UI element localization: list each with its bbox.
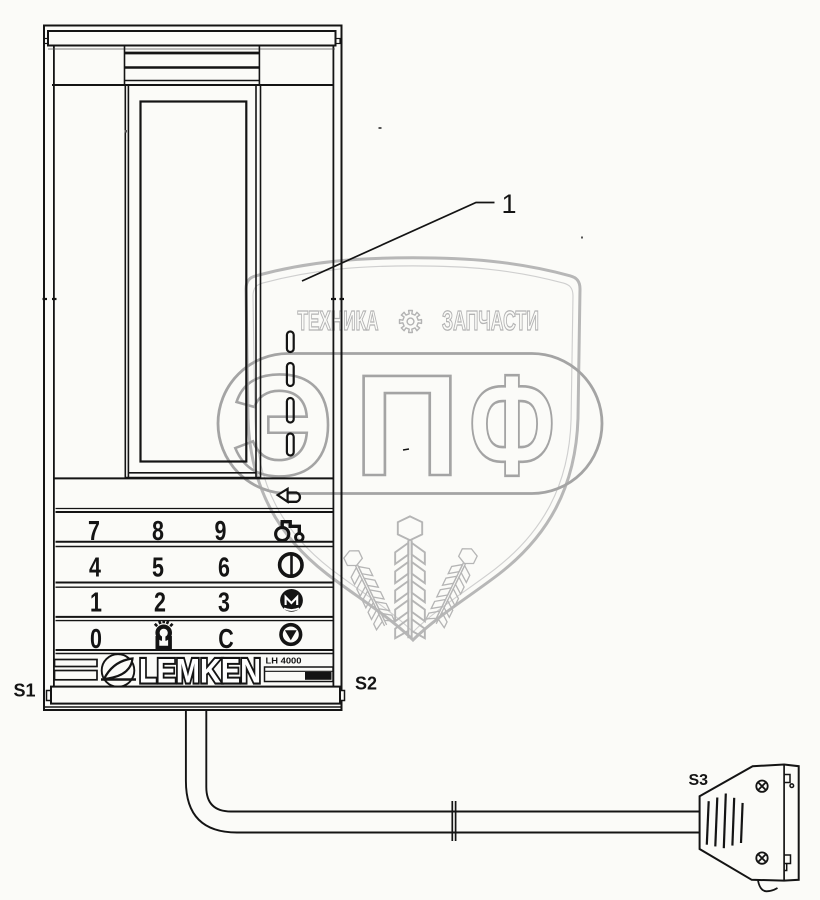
svg-text:7: 7: [88, 517, 100, 547]
svg-text:1: 1: [501, 189, 516, 219]
svg-text:S3: S3: [689, 772, 709, 789]
svg-text:1: 1: [90, 588, 102, 618]
svg-text:Ф: Ф: [469, 346, 556, 507]
svg-text:ТЕХНИКА: ТЕХНИКА: [298, 305, 379, 336]
svg-text:8: 8: [152, 517, 164, 547]
svg-text:2: 2: [154, 588, 166, 618]
svg-text:S2: S2: [355, 674, 377, 694]
svg-text:0: 0: [90, 625, 102, 655]
svg-text:C: C: [218, 625, 234, 655]
svg-text:6: 6: [218, 553, 230, 583]
svg-text:П: П: [354, 345, 461, 506]
svg-text:LEMKEN: LEMKEN: [139, 653, 261, 691]
svg-text:S1: S1: [14, 681, 36, 701]
svg-text:5: 5: [152, 553, 164, 583]
svg-text:4: 4: [89, 553, 101, 583]
svg-text:3: 3: [218, 588, 230, 618]
svg-text:9: 9: [215, 517, 227, 547]
svg-text:ЗАПЧАСТИ: ЗАПЧАСТИ: [442, 305, 539, 336]
svg-text:LH 4000: LH 4000: [266, 656, 302, 666]
